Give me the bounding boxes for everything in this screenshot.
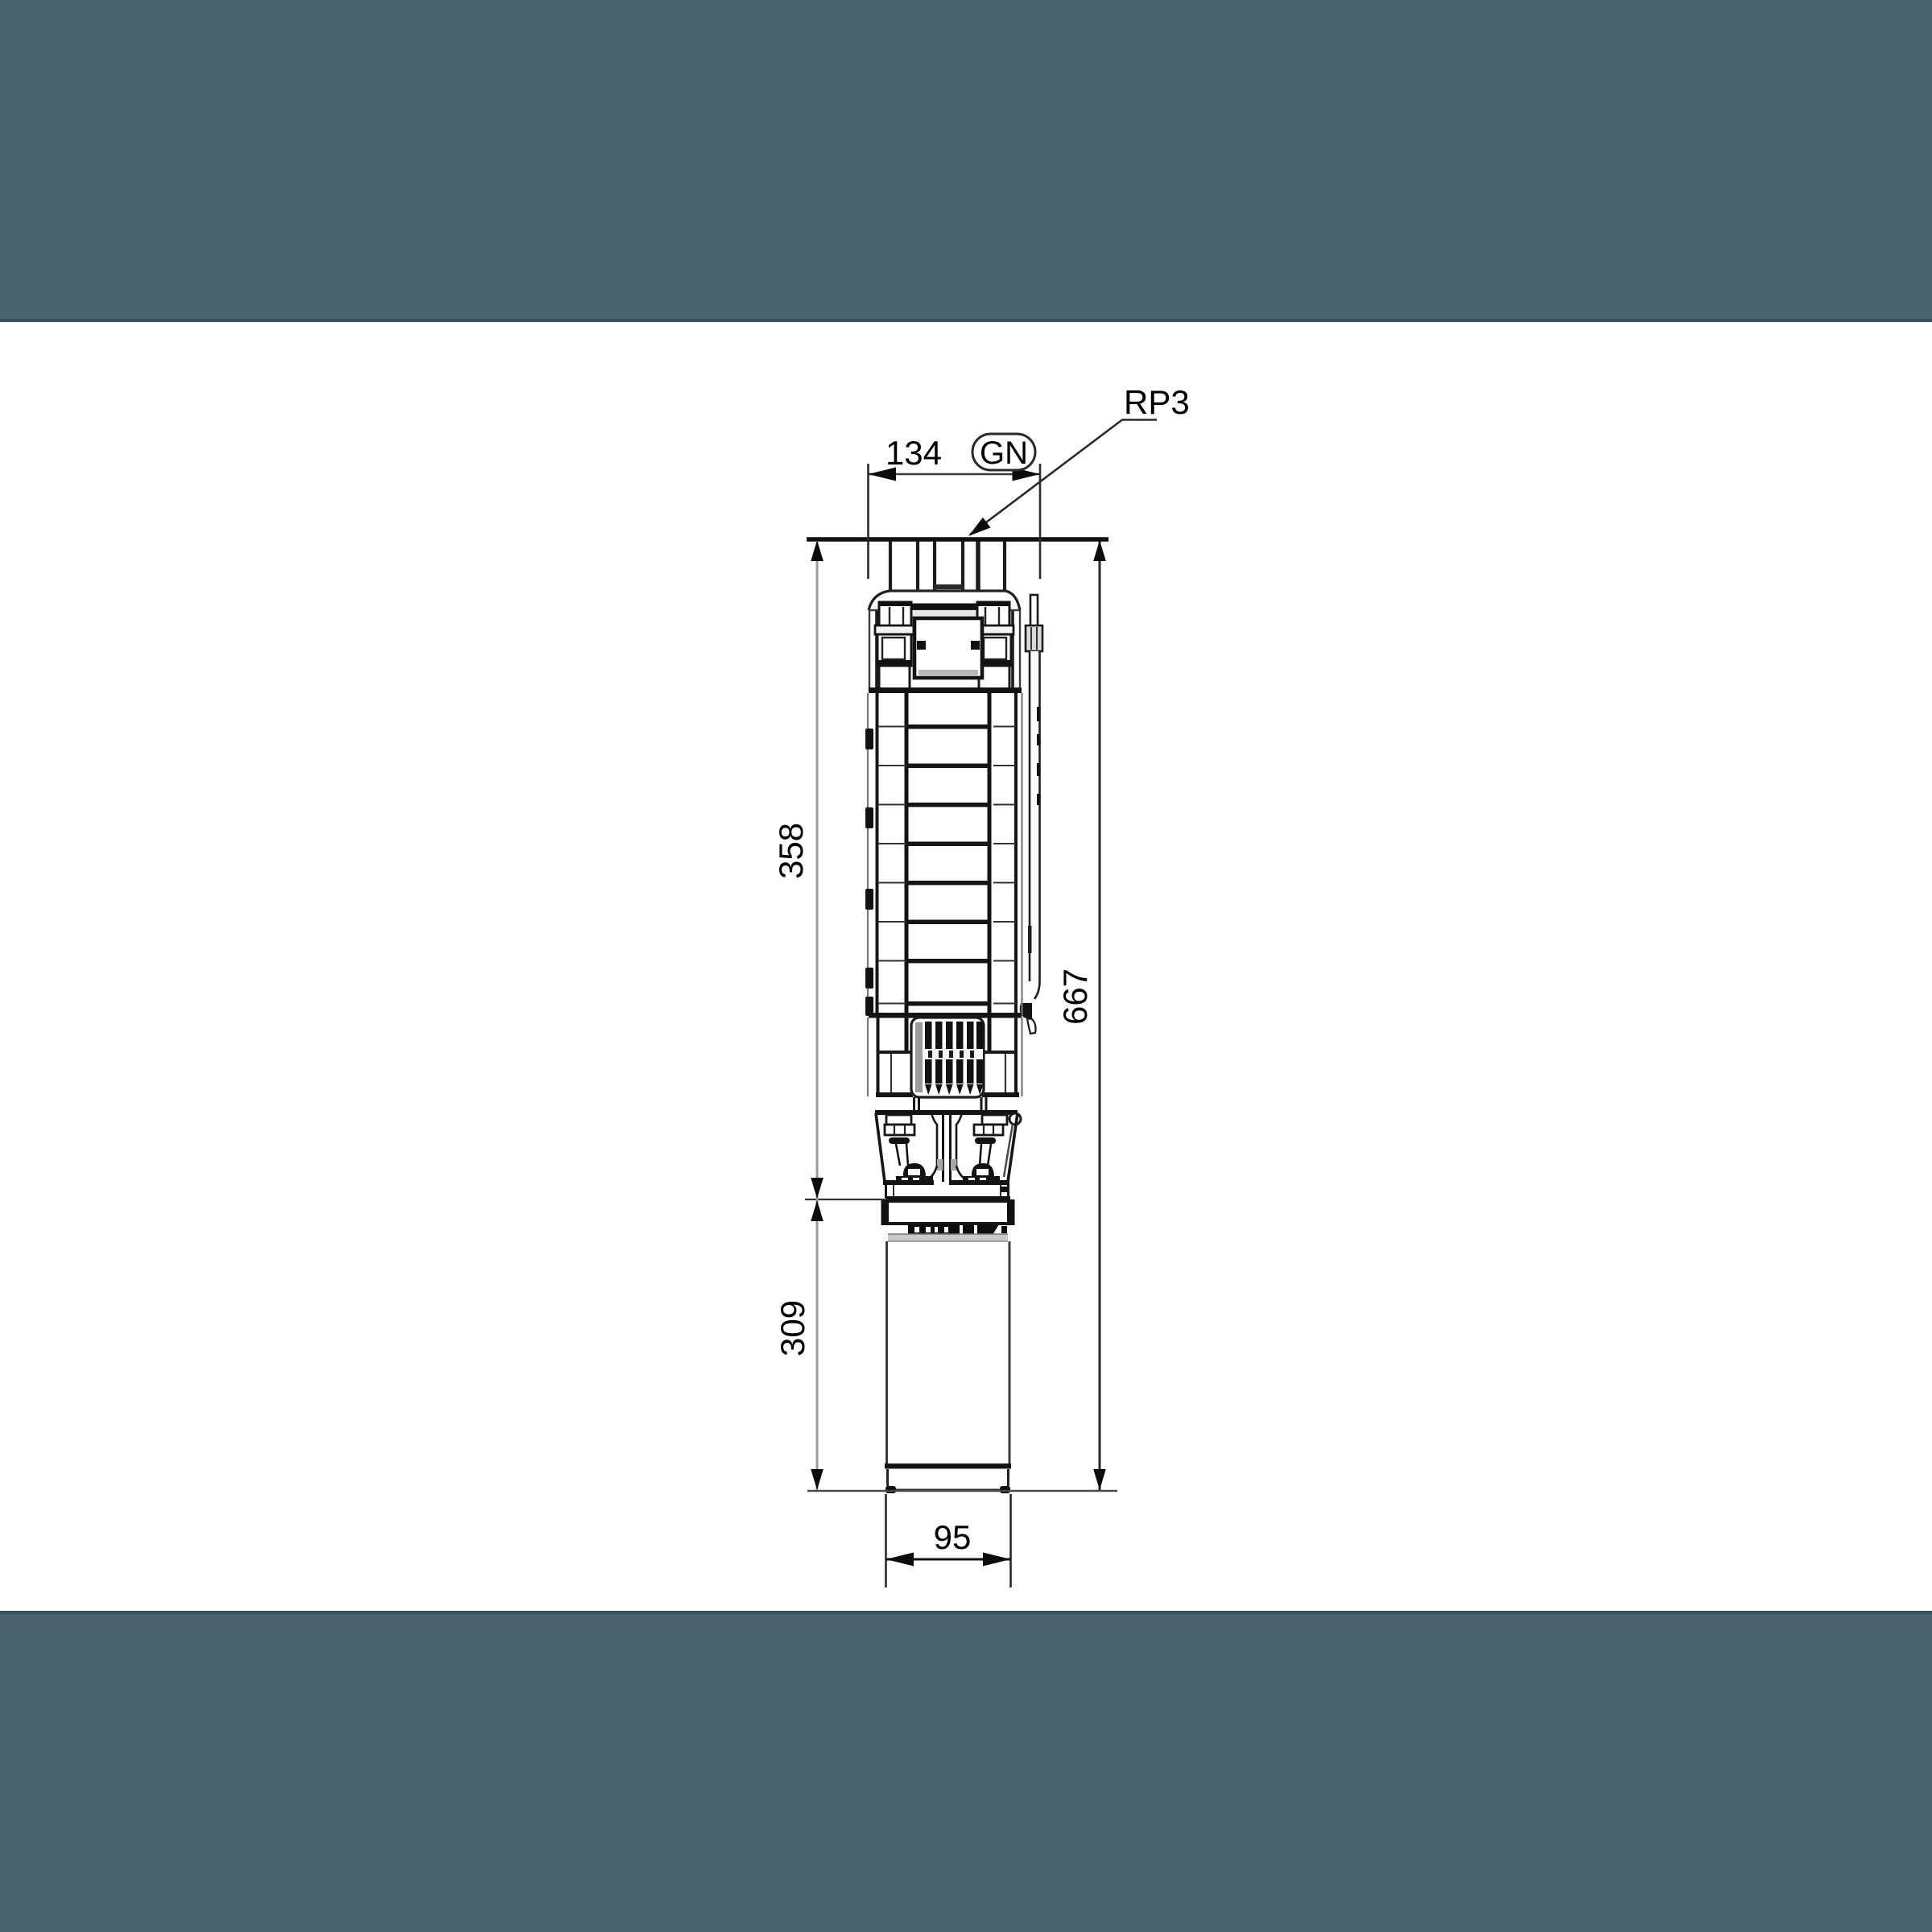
svg-text:667: 667 xyxy=(1056,968,1094,1025)
svg-text:GN: GN xyxy=(980,436,1028,471)
svg-text:309: 309 xyxy=(774,1300,811,1356)
svg-text:134: 134 xyxy=(885,434,942,472)
svg-text:95: 95 xyxy=(934,1518,972,1556)
svg-text:358: 358 xyxy=(772,823,810,879)
svg-text:RP3: RP3 xyxy=(1124,383,1190,421)
